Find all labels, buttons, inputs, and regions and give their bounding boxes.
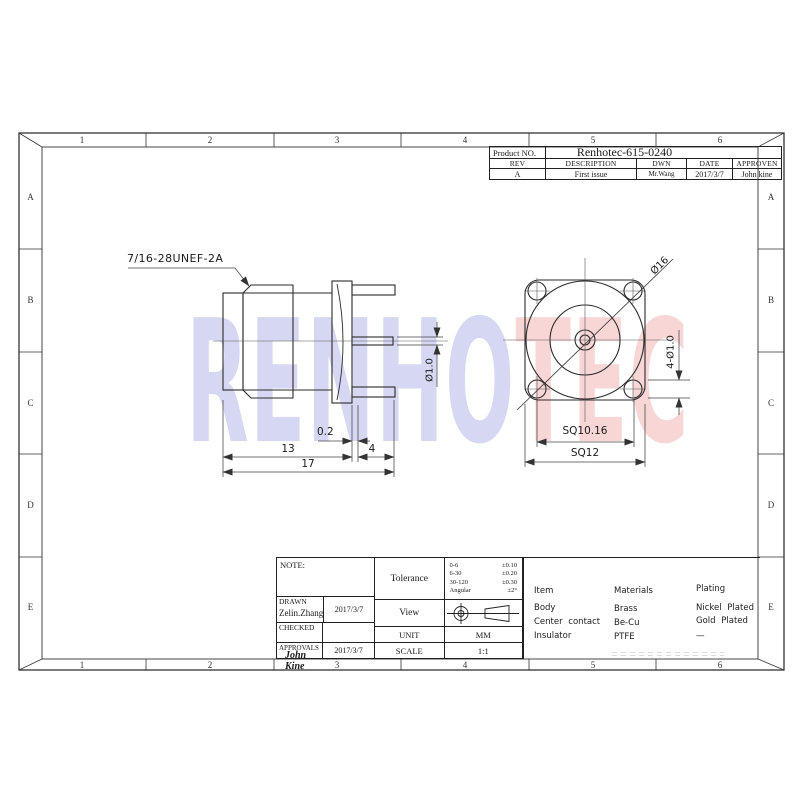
third-angle-projection-icon bbox=[445, 601, 521, 626]
dim-flange-square-label: SQ12 bbox=[571, 447, 599, 459]
watermark-part1: RENHO bbox=[186, 284, 515, 482]
approvals-cell: APPROVALS John Kine bbox=[277, 643, 323, 658]
row-right-a: A bbox=[759, 192, 783, 202]
date-header: DATE bbox=[687, 159, 733, 169]
materials-row-insulator-item: Insulator bbox=[534, 631, 571, 641]
tol-range-4: Angular bbox=[450, 587, 471, 596]
materials-header-item: Item bbox=[534, 586, 553, 596]
checked-date bbox=[323, 623, 374, 642]
note-cell: NOTE: bbox=[277, 558, 374, 597]
tol-value-3: ±0.30 bbox=[502, 579, 517, 588]
tolerance-label: Tolerance bbox=[375, 558, 445, 599]
tol-range-3: 30-120 bbox=[450, 579, 468, 588]
tol-range-1: 0-6 bbox=[450, 562, 459, 571]
materials-table: Item Materials Plating Body Brass Nickel… bbox=[523, 557, 760, 659]
checked-label: CHECKED bbox=[279, 624, 320, 632]
projection-symbol-cell bbox=[445, 600, 522, 626]
approvals-date: 2017/3/7 bbox=[323, 643, 374, 658]
tol-range-2: 6-30 bbox=[450, 570, 462, 579]
tol-value-4: ±2° bbox=[508, 587, 517, 596]
zone-bottom-3: 3 bbox=[327, 660, 347, 670]
row-right-d: D bbox=[759, 500, 783, 510]
drawing-sheet: RENHOTEC bbox=[0, 0, 800, 800]
zone-top-1: 1 bbox=[72, 135, 92, 145]
row-left-c: C bbox=[20, 398, 41, 408]
view-label: View bbox=[375, 600, 445, 626]
dim-gap-label: 0.2 bbox=[317, 426, 334, 438]
zone-top-5: 5 bbox=[583, 135, 603, 145]
date-value: 2017/3/7 bbox=[687, 169, 733, 179]
zone-top-3: 3 bbox=[327, 135, 347, 145]
zone-top-4: 4 bbox=[455, 135, 475, 145]
tolerance-values: 0-6±0.10 6-30±0.20 30-120±0.30 Angular±2… bbox=[445, 558, 522, 599]
tolerance-block: Tolerance 0-6±0.10 6-30±0.20 30-120±0.30… bbox=[375, 557, 523, 659]
row-right-e: E bbox=[759, 602, 783, 612]
approven-header: APPROVEN bbox=[733, 159, 781, 169]
dim-body-length-label: 13 bbox=[281, 443, 294, 455]
zone-bottom-5: 5 bbox=[583, 660, 603, 670]
drawn-label: DRAWN bbox=[279, 598, 321, 606]
row-left-b: B bbox=[20, 295, 41, 305]
rev-value: A bbox=[490, 169, 546, 179]
description-value: First issue bbox=[546, 169, 637, 179]
scale-label: SCALE bbox=[375, 643, 445, 658]
materials-row-body-material: Brass bbox=[614, 604, 637, 614]
row-left-d: D bbox=[20, 500, 41, 510]
faint-print-artifact bbox=[612, 652, 724, 658]
signature-block: NOTE: DRAWN Zelin.Zhang 2017/3/7 CHECKED… bbox=[276, 557, 375, 659]
title-block: Product NO. Renhotec-615-0240 REV DESCRI… bbox=[489, 146, 782, 180]
unit-label: UNIT bbox=[375, 627, 445, 642]
zone-top-6: 6 bbox=[710, 135, 730, 145]
watermark-part2: TEC bbox=[515, 284, 689, 482]
dwn-header: DWN bbox=[637, 159, 687, 169]
product-no-label: Product NO. bbox=[490, 147, 546, 159]
materials-row-contact-plating: Gold Plated bbox=[696, 616, 748, 626]
dim-mounting-holes-label: 4-Ø1.0 bbox=[666, 335, 677, 369]
description-header: DESCRIPTION bbox=[546, 159, 637, 169]
product-no-value: Renhotec-615-0240 bbox=[546, 147, 781, 159]
dim-flange-diameter-label: Ø16 bbox=[649, 255, 671, 277]
rev-header: REV bbox=[490, 159, 546, 169]
approvals-signature: John Kine bbox=[285, 650, 320, 672]
row-left-a: A bbox=[20, 192, 41, 202]
materials-row-insulator-material: PTFE bbox=[614, 632, 635, 642]
materials-row-contact-material: Be-Cu bbox=[614, 618, 639, 628]
dim-total-length-label: 17 bbox=[301, 458, 314, 470]
dim-hole-pitch-label: SQ10.16 bbox=[563, 425, 608, 437]
row-right-c: C bbox=[759, 398, 783, 408]
zone-bottom-6: 6 bbox=[710, 660, 730, 670]
approven-value: John kine bbox=[733, 169, 781, 179]
row-left-e: E bbox=[20, 602, 41, 612]
thread-spec-label: 7/16-28UNEF-2A bbox=[127, 252, 223, 265]
renhotec-watermark: RENHOTEC bbox=[186, 298, 690, 468]
tol-value-1: ±0.10 bbox=[502, 562, 517, 571]
dim-pin-diameter-label: Ø1.0 bbox=[425, 358, 436, 382]
zone-bottom-1: 1 bbox=[72, 660, 92, 670]
zone-bottom-4: 4 bbox=[455, 660, 475, 670]
materials-header-plating: Plating bbox=[696, 584, 725, 594]
materials-row-contact-item: Center contact bbox=[534, 617, 600, 627]
zone-top-2: 2 bbox=[200, 135, 220, 145]
zone-bottom-2: 2 bbox=[200, 660, 220, 670]
materials-row-body-plating: Nickel Plated bbox=[696, 603, 754, 613]
row-right-b: B bbox=[759, 295, 783, 305]
materials-row-body-item: Body bbox=[534, 603, 555, 613]
unit-value: MM bbox=[445, 627, 522, 642]
tol-value-2: ±0.20 bbox=[502, 570, 517, 579]
materials-row-insulator-plating: — bbox=[696, 631, 705, 641]
drawn-name: Zelin.Zhang bbox=[279, 608, 321, 618]
dwn-value: Mr.Wang bbox=[637, 169, 687, 179]
checked-cell: CHECKED bbox=[277, 623, 323, 642]
drawn-cell: DRAWN Zelin.Zhang bbox=[277, 597, 324, 622]
drawn-date: 2017/3/7 bbox=[324, 597, 374, 622]
dim-pin-length-label: 4 bbox=[369, 443, 376, 455]
materials-header-materials: Materials bbox=[614, 586, 653, 596]
scale-value: 1:1 bbox=[445, 643, 522, 658]
